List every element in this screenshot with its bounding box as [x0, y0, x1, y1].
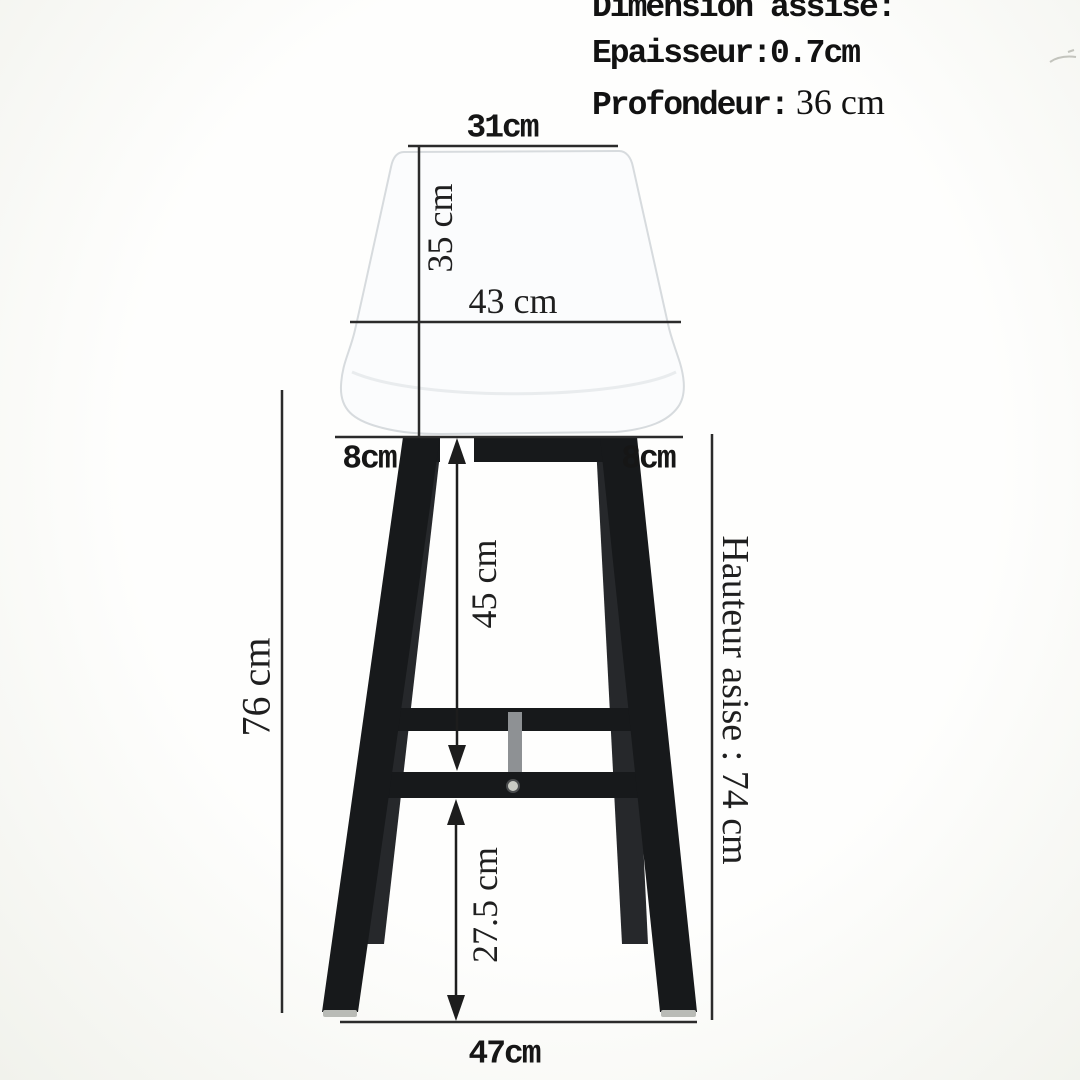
photo-artifact: [1050, 50, 1076, 62]
label-backrest-top-width: 31cm: [466, 110, 537, 147]
label-seat-height: Hauteur asise : 74 cm: [713, 535, 757, 864]
label-seat-overhang-right: 8cm: [621, 441, 674, 478]
stool-drawing: [0, 0, 1080, 1080]
screw: [507, 780, 519, 792]
left-foot-glide: [323, 1010, 357, 1017]
header-depth: Profondeur:36 cm: [592, 82, 885, 125]
right-foot-glide: [661, 1010, 696, 1017]
header-depth-value: 36 cm: [796, 82, 885, 122]
label-footrest-to-floor: 27.5 cm: [464, 847, 506, 963]
footrest-strut: [508, 712, 522, 774]
header-depth-label: Profondeur:: [592, 87, 788, 124]
label-seat-width: 43 cm: [469, 280, 558, 322]
label-overall-height: 76 cm: [233, 638, 280, 737]
label-seat-overhang-left: 8cm: [342, 441, 395, 478]
header-thickness: Epaisseur:0.7cm: [592, 36, 859, 73]
arrow-up-footrest: [447, 799, 465, 825]
header-title: Dimension assise:: [592, 0, 895, 27]
dimension-diagram: Dimension assise: Epaisseur:0.7cm Profon…: [0, 0, 1080, 1080]
label-backrest-height: 35 cm: [419, 184, 461, 273]
label-base-width: 47cm: [468, 1036, 539, 1073]
label-seat-to-footrest: 45 cm: [463, 540, 505, 629]
arrow-down-floor: [447, 995, 465, 1021]
arrow-down-footrest: [448, 745, 466, 771]
